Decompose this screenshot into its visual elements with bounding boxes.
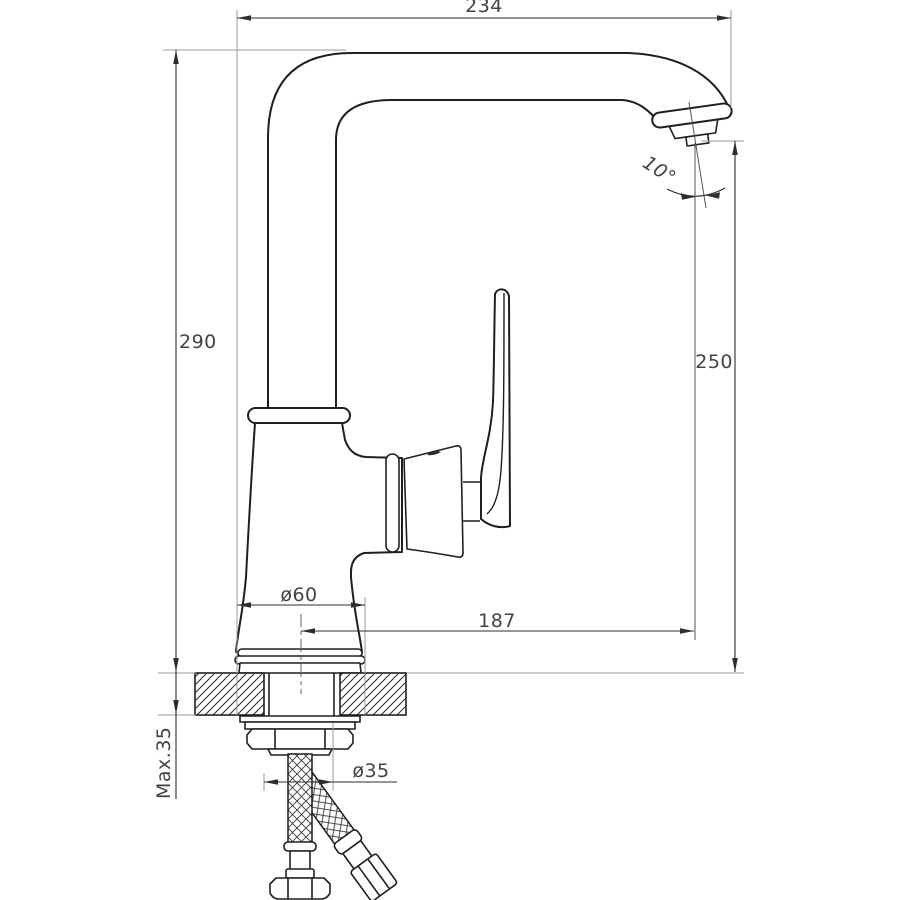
hose-end-nut [270,878,330,899]
mounting-hardware [240,716,360,755]
countertop [195,673,406,716]
mounting-nut [247,729,353,749]
counter-section-left [195,673,264,715]
body-cone [236,423,402,652]
supply-hose-vertical [270,754,330,899]
dim-label-overall-width: 234 [465,0,503,17]
base-rings [235,649,365,673]
aerator-nozzle [686,134,709,146]
counter-section-right [340,673,406,715]
mounting-shank-walls [269,673,334,716]
neck-flange [248,408,350,423]
faucet-body [235,408,402,673]
dim-label-base-diameter: ø60 [280,584,317,606]
dim-label-spout-reach: 187 [478,610,516,632]
dim-label-max-counter-thickness: Max.35 [153,727,175,800]
dim-label-outlet-angle: 10° [638,152,679,190]
dim-label-hole-diameter: ø35 [352,760,389,782]
washer-plate [240,716,360,722]
handle-lever [481,289,510,527]
dim-label-overall-height: 290 [179,331,217,353]
cartridge-cone [404,446,463,558]
dim-label-outlet-height: 250 [695,351,733,373]
drawing-svg: 234 290 250 10° ø60 187 ø35 Max.35 [0,0,900,900]
handle-neck-lines [462,482,480,521]
faucet-handle [386,289,510,557]
faucet-dimension-drawing: 234 290 250 10° ø60 187 ø35 Max.35 [0,0,900,900]
rubber-gasket [245,722,355,729]
handle-collar [386,454,399,552]
